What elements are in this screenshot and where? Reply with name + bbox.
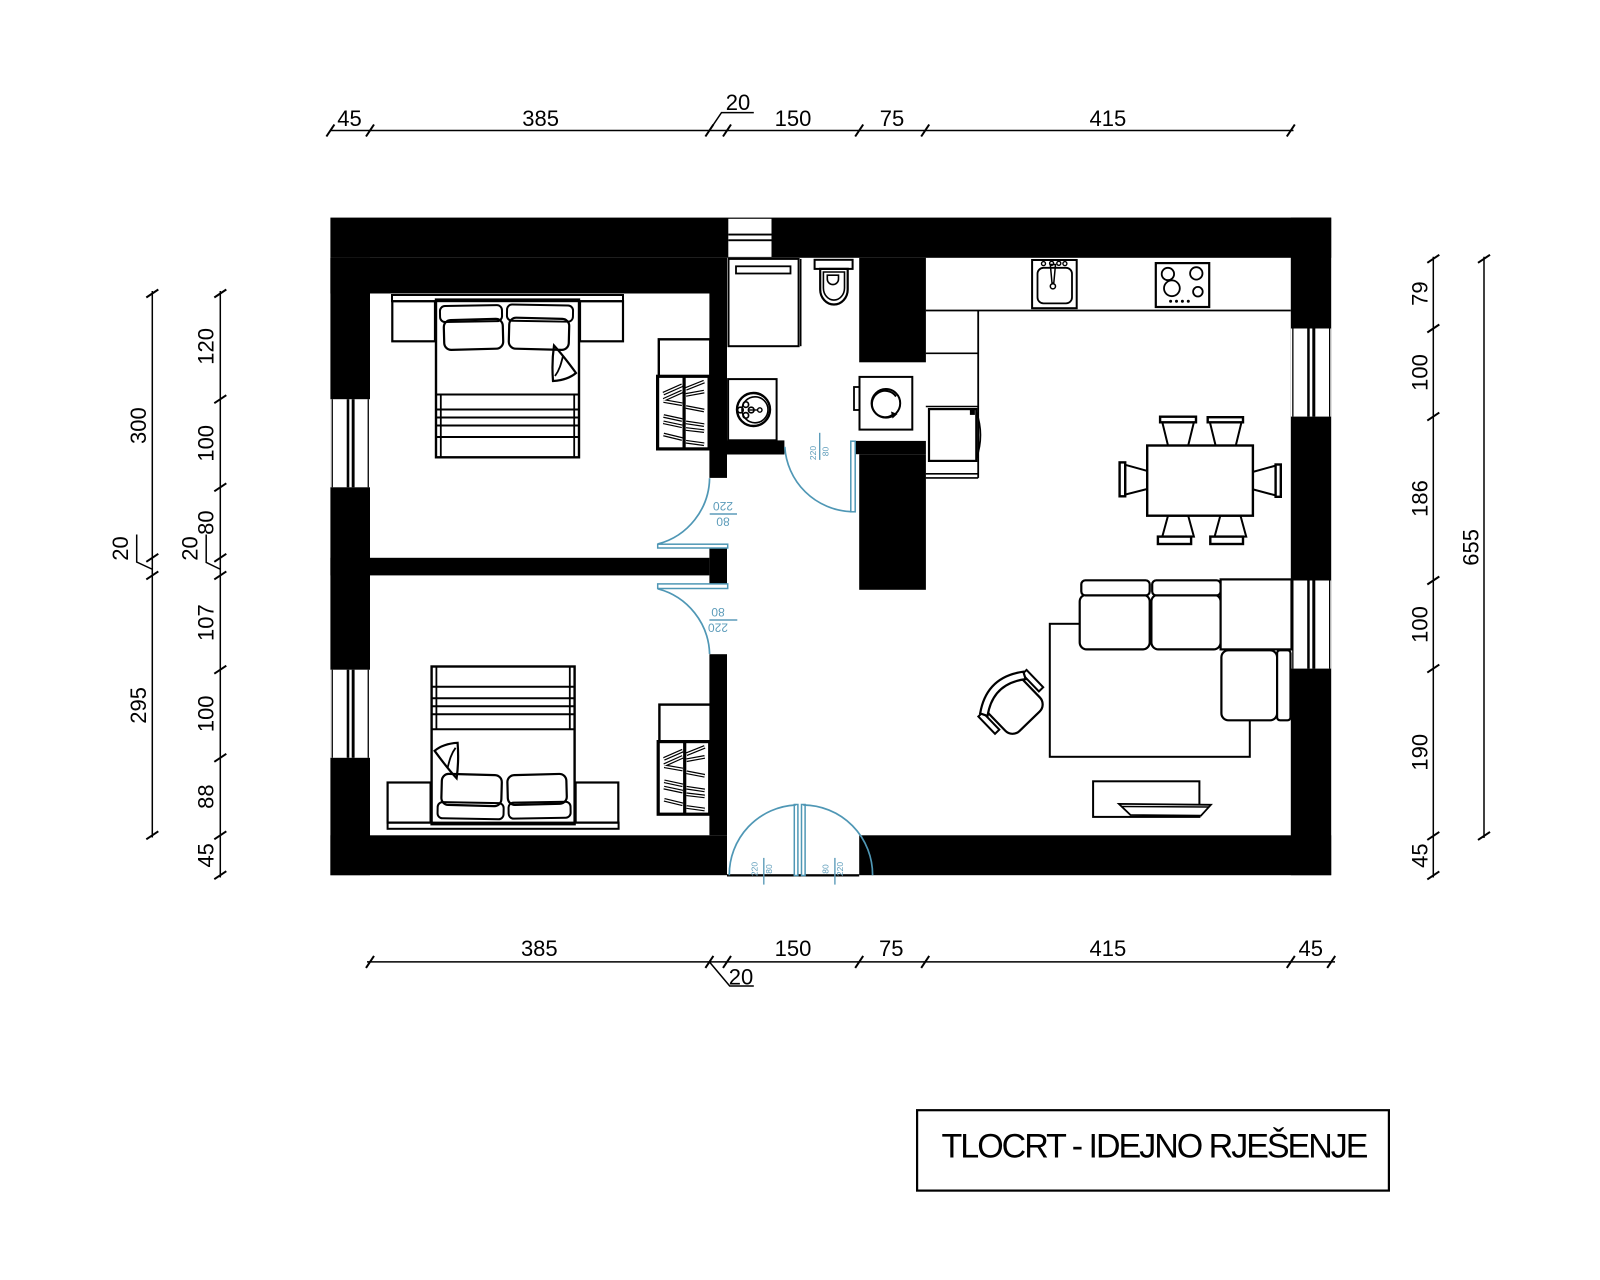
svg-text:415: 415 — [1090, 936, 1127, 961]
svg-text:150: 150 — [775, 936, 812, 961]
svg-text:45: 45 — [1298, 936, 1322, 961]
svg-text:TLOCRT - IDEJNO RJEŠENJE: TLOCRT - IDEJNO RJEŠENJE — [942, 1128, 1368, 1166]
svg-text:80: 80 — [194, 510, 219, 534]
svg-text:45: 45 — [194, 843, 219, 867]
svg-text:385: 385 — [521, 936, 558, 961]
svg-text:80: 80 — [820, 447, 830, 457]
svg-text:220: 220 — [749, 862, 759, 876]
svg-text:100: 100 — [1408, 606, 1433, 643]
svg-text:107: 107 — [194, 604, 219, 641]
svg-text:100: 100 — [194, 425, 219, 462]
svg-text:220: 220 — [708, 621, 728, 635]
svg-text:80: 80 — [716, 514, 730, 528]
svg-text:415: 415 — [1090, 106, 1127, 131]
svg-text:385: 385 — [522, 106, 559, 131]
svg-text:20: 20 — [726, 90, 750, 115]
svg-text:655: 655 — [1458, 529, 1483, 566]
svg-text:100: 100 — [194, 695, 219, 732]
svg-text:80: 80 — [820, 864, 830, 874]
svg-text:220: 220 — [808, 446, 818, 460]
svg-text:88: 88 — [194, 784, 219, 808]
svg-text:20: 20 — [108, 536, 133, 560]
svg-text:80: 80 — [711, 605, 725, 619]
svg-text:45: 45 — [337, 106, 361, 131]
svg-text:120: 120 — [194, 328, 219, 365]
svg-text:75: 75 — [879, 936, 903, 961]
svg-text:45: 45 — [1408, 843, 1433, 867]
svg-text:190: 190 — [1408, 734, 1433, 771]
svg-text:295: 295 — [126, 687, 151, 724]
svg-text:20: 20 — [178, 536, 203, 560]
svg-text:186: 186 — [1408, 480, 1433, 517]
svg-text:75: 75 — [880, 106, 904, 131]
svg-text:20: 20 — [729, 965, 753, 990]
svg-text:150: 150 — [775, 106, 812, 131]
svg-text:100: 100 — [1408, 354, 1433, 391]
svg-text:300: 300 — [126, 407, 151, 444]
svg-text:220: 220 — [713, 499, 733, 513]
svg-text:220: 220 — [835, 862, 845, 876]
svg-text:79: 79 — [1408, 281, 1433, 305]
svg-text:80: 80 — [764, 864, 774, 874]
